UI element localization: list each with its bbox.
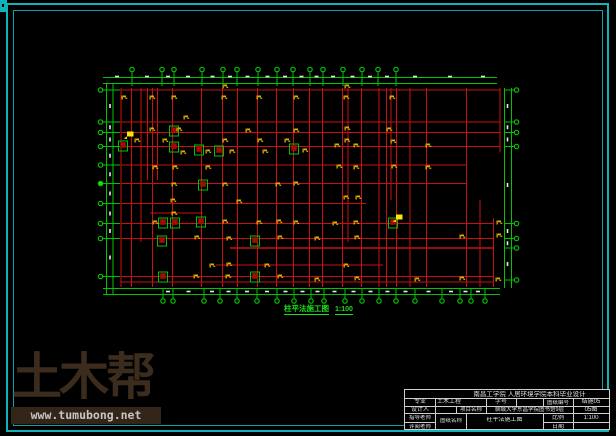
cad-viewport: 柱平法施工图1:100 土木帮 www.tumubong.net 南昌工学院 人…	[0, 0, 616, 436]
tb-sheet-name-label: 图纸名称	[437, 418, 465, 425]
tb-designer-label: 设计人	[406, 407, 434, 414]
plan-caption: 柱平法施工图1:100	[284, 304, 353, 315]
tb-major-value: 土木工程	[437, 399, 485, 406]
plan-caption-title: 柱平法施工图	[284, 304, 329, 315]
tb-scale-label: 比例	[544, 415, 572, 422]
tb-date-label: 日期	[544, 424, 572, 431]
tb-major-label: 专业	[406, 399, 434, 406]
tb-header: 南昌工学院 人居环境学院本科毕业设计	[450, 391, 609, 398]
tb-scale-value: 1:100	[574, 415, 608, 422]
tb-sheet-no-value: 05图	[574, 407, 608, 414]
plan-caption-scale: 1:100	[335, 306, 353, 315]
tb-drawing-no-value: 结施05	[574, 399, 608, 406]
corner-artifact	[0, 0, 7, 12]
title-block: 南昌工学院 人居环境学院本科毕业设计 专业 土木工程 学号 图纸编号 结施05 …	[404, 389, 610, 430]
tb-reviewer-label: 评阅老师	[406, 424, 434, 431]
watermark-brand: 土木帮	[12, 350, 172, 404]
watermark-url: www.tumubong.net	[11, 407, 161, 424]
tb-advisor-label: 指导老师	[406, 415, 434, 422]
tb-project-value: 聊城大学东昌学院图书馆9层	[487, 407, 572, 414]
tb-drawing-no-label: 图纸编号	[544, 400, 572, 407]
tb-project-label: 项目名称	[457, 407, 485, 414]
tb-student-id-label: 学号	[487, 399, 515, 406]
tb-sheet-name-value: 柱平法施工图	[467, 417, 542, 424]
